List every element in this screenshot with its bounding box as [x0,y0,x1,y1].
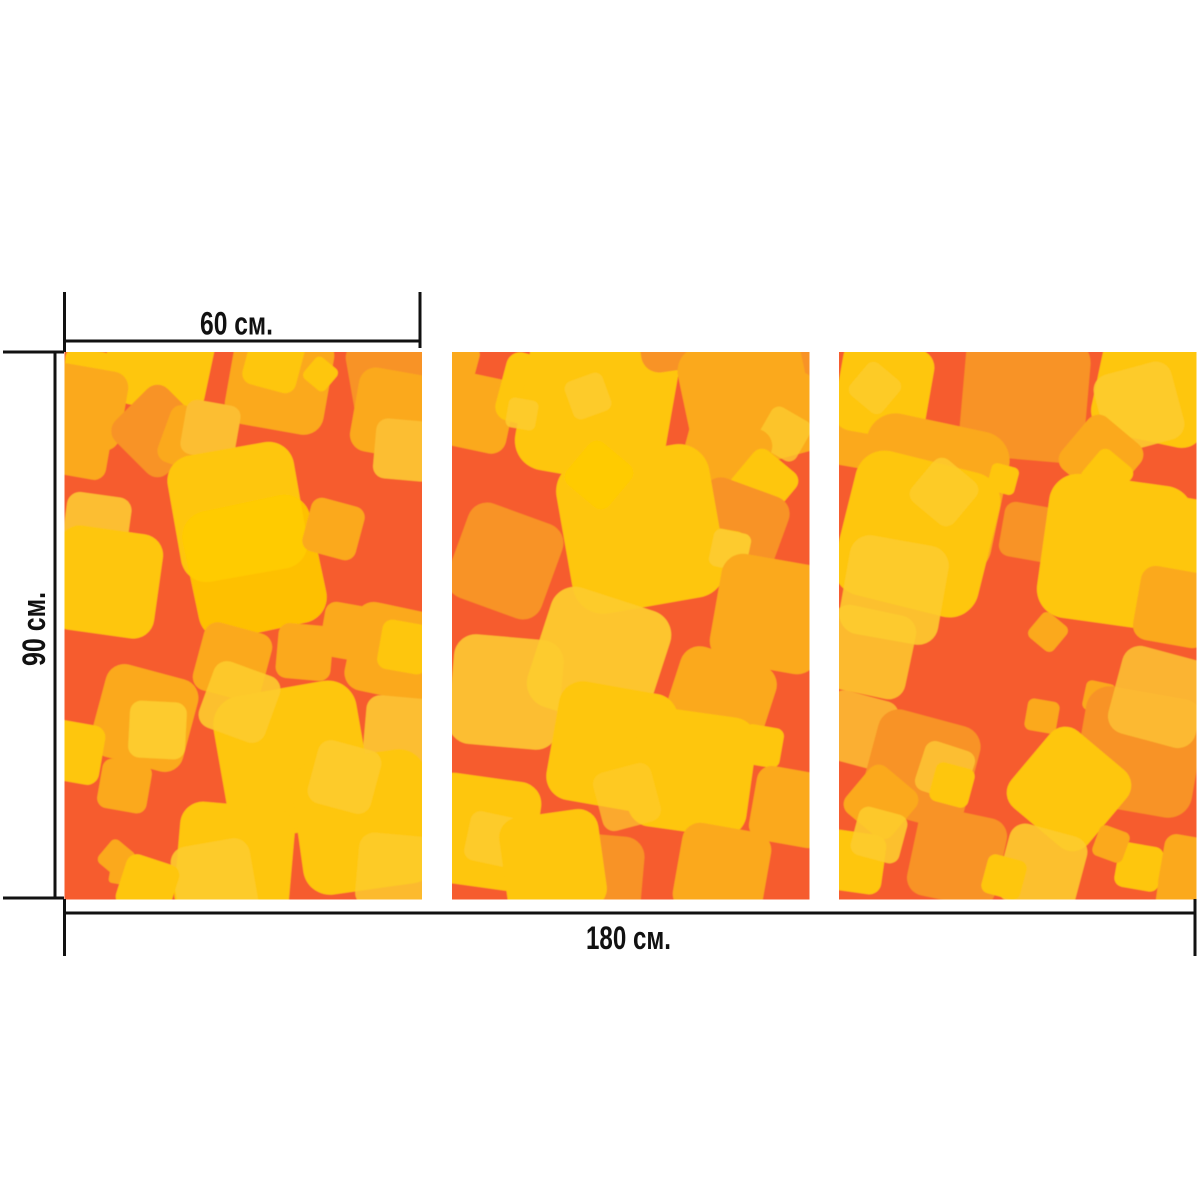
svg-text:60 см.: 60 см. [200,306,273,342]
svg-text:90 см.: 90 см. [16,592,52,666]
svg-text:180 см.: 180 см. [586,920,671,956]
